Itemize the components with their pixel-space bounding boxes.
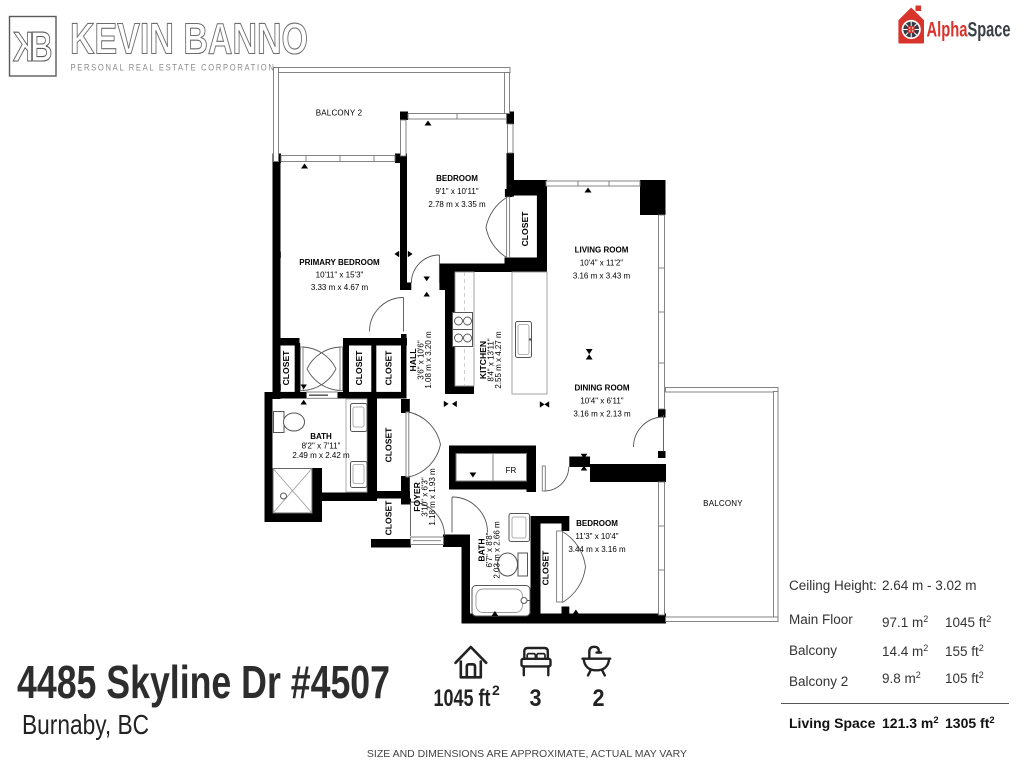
svg-text:1.18 m x 1.93 m: 1.18 m x 1.93 m bbox=[428, 468, 437, 526]
svg-text:2.55 m x 4.27 m: 2.55 m x 4.27 m bbox=[494, 331, 503, 389]
svg-text:121.3 m2: 121.3 m2 bbox=[882, 715, 939, 731]
svg-text:CLOSET: CLOSET bbox=[384, 350, 394, 386]
svg-text:B: B bbox=[31, 23, 53, 70]
svg-text:97.1 m2: 97.1 m2 bbox=[882, 614, 928, 630]
svg-text:FR: FR bbox=[506, 466, 517, 475]
svg-text:2: 2 bbox=[492, 682, 500, 698]
svg-text:CLOSET: CLOSET bbox=[520, 211, 530, 247]
svg-text:LIVING ROOM: LIVING ROOM bbox=[575, 246, 629, 255]
svg-text:BEDROOM: BEDROOM bbox=[436, 174, 478, 183]
svg-text:2.78 m x 3.35 m: 2.78 m x 3.35 m bbox=[428, 200, 486, 209]
svg-text:BATH: BATH bbox=[310, 432, 332, 441]
svg-text:BEDROOM: BEDROOM bbox=[576, 519, 618, 528]
svg-text:Main Floor: Main Floor bbox=[789, 612, 853, 627]
svg-text:3: 3 bbox=[530, 685, 542, 712]
svg-text:3.16 m x 3.43 m: 3.16 m x 3.43 m bbox=[573, 272, 631, 281]
svg-text:SIZE AND DIMENSIONS ARE APPROX: SIZE AND DIMENSIONS ARE APPROXIMATE, ACT… bbox=[367, 748, 687, 760]
svg-text:Balcony: Balcony bbox=[789, 643, 837, 658]
svg-text:155 ft2: 155 ft2 bbox=[945, 643, 984, 659]
svg-text:9.8 m2: 9.8 m2 bbox=[882, 670, 921, 686]
svg-text:3.44 m x 3.16 m: 3.44 m x 3.16 m bbox=[568, 545, 626, 554]
svg-text:Burnaby, BC: Burnaby, BC bbox=[22, 709, 149, 740]
svg-text:4485 Skyline Dr #4507: 4485 Skyline Dr #4507 bbox=[17, 656, 390, 708]
svg-text:Ceiling Height:: Ceiling Height: bbox=[789, 578, 877, 593]
svg-text:2.64 m - 3.02 m: 2.64 m - 3.02 m bbox=[882, 578, 977, 593]
svg-text:1045 ft: 1045 ft bbox=[434, 685, 491, 712]
svg-text:2.49 m x 2.42 m: 2.49 m x 2.42 m bbox=[292, 451, 350, 460]
svg-text:Alpha: Alpha bbox=[927, 18, 969, 42]
svg-text:9'1" x 10'11": 9'1" x 10'11" bbox=[435, 187, 478, 196]
svg-text:Balcony 2: Balcony 2 bbox=[789, 674, 848, 689]
svg-text:1.08 m x 3.20 m: 1.08 m x 3.20 m bbox=[424, 331, 433, 389]
svg-text:CLOSET: CLOSET bbox=[281, 350, 291, 386]
svg-text:10'4" x 11'2": 10'4" x 11'2" bbox=[580, 259, 623, 268]
svg-text:Living Space: Living Space bbox=[789, 715, 876, 731]
svg-text:10'4" x 6'11": 10'4" x 6'11" bbox=[580, 397, 623, 406]
svg-text:14.4 m2: 14.4 m2 bbox=[882, 643, 928, 659]
svg-text:BALCONY: BALCONY bbox=[703, 499, 743, 508]
svg-text:10'11" x 15'3": 10'11" x 15'3" bbox=[316, 271, 364, 280]
svg-text:3.33 m x 4.67 m: 3.33 m x 4.67 m bbox=[311, 283, 369, 292]
svg-text:1305 ft2: 1305 ft2 bbox=[945, 715, 995, 731]
svg-text:CLOSET: CLOSET bbox=[354, 350, 364, 386]
svg-text:1045 ft2: 1045 ft2 bbox=[945, 614, 991, 630]
svg-text:KEVIN BANNO: KEVIN BANNO bbox=[70, 15, 308, 64]
svg-text:2: 2 bbox=[593, 685, 605, 712]
svg-text:11'3" x 10'4": 11'3" x 10'4" bbox=[575, 532, 618, 541]
svg-text:PERSONAL REAL ESTATE CORPORATI: PERSONAL REAL ESTATE CORPORATION bbox=[71, 63, 276, 73]
svg-text:Space: Space bbox=[968, 18, 1011, 42]
svg-text:8'2" x 7'11": 8'2" x 7'11" bbox=[302, 442, 341, 451]
svg-text:DINING ROOM: DINING ROOM bbox=[574, 384, 629, 393]
svg-text:PRIMARY BEDROOM: PRIMARY BEDROOM bbox=[299, 258, 380, 267]
svg-text:3.16 m x 2.13 m: 3.16 m x 2.13 m bbox=[573, 410, 631, 419]
svg-text:BALCONY 2: BALCONY 2 bbox=[316, 109, 363, 118]
svg-text:2.03 m x 2.66 m: 2.03 m x 2.66 m bbox=[493, 521, 502, 579]
svg-text:CLOSET: CLOSET bbox=[384, 500, 394, 536]
svg-text:CLOSET: CLOSET bbox=[541, 550, 551, 586]
svg-text:105 ft2: 105 ft2 bbox=[945, 670, 984, 686]
svg-text:CLOSET: CLOSET bbox=[384, 427, 394, 463]
